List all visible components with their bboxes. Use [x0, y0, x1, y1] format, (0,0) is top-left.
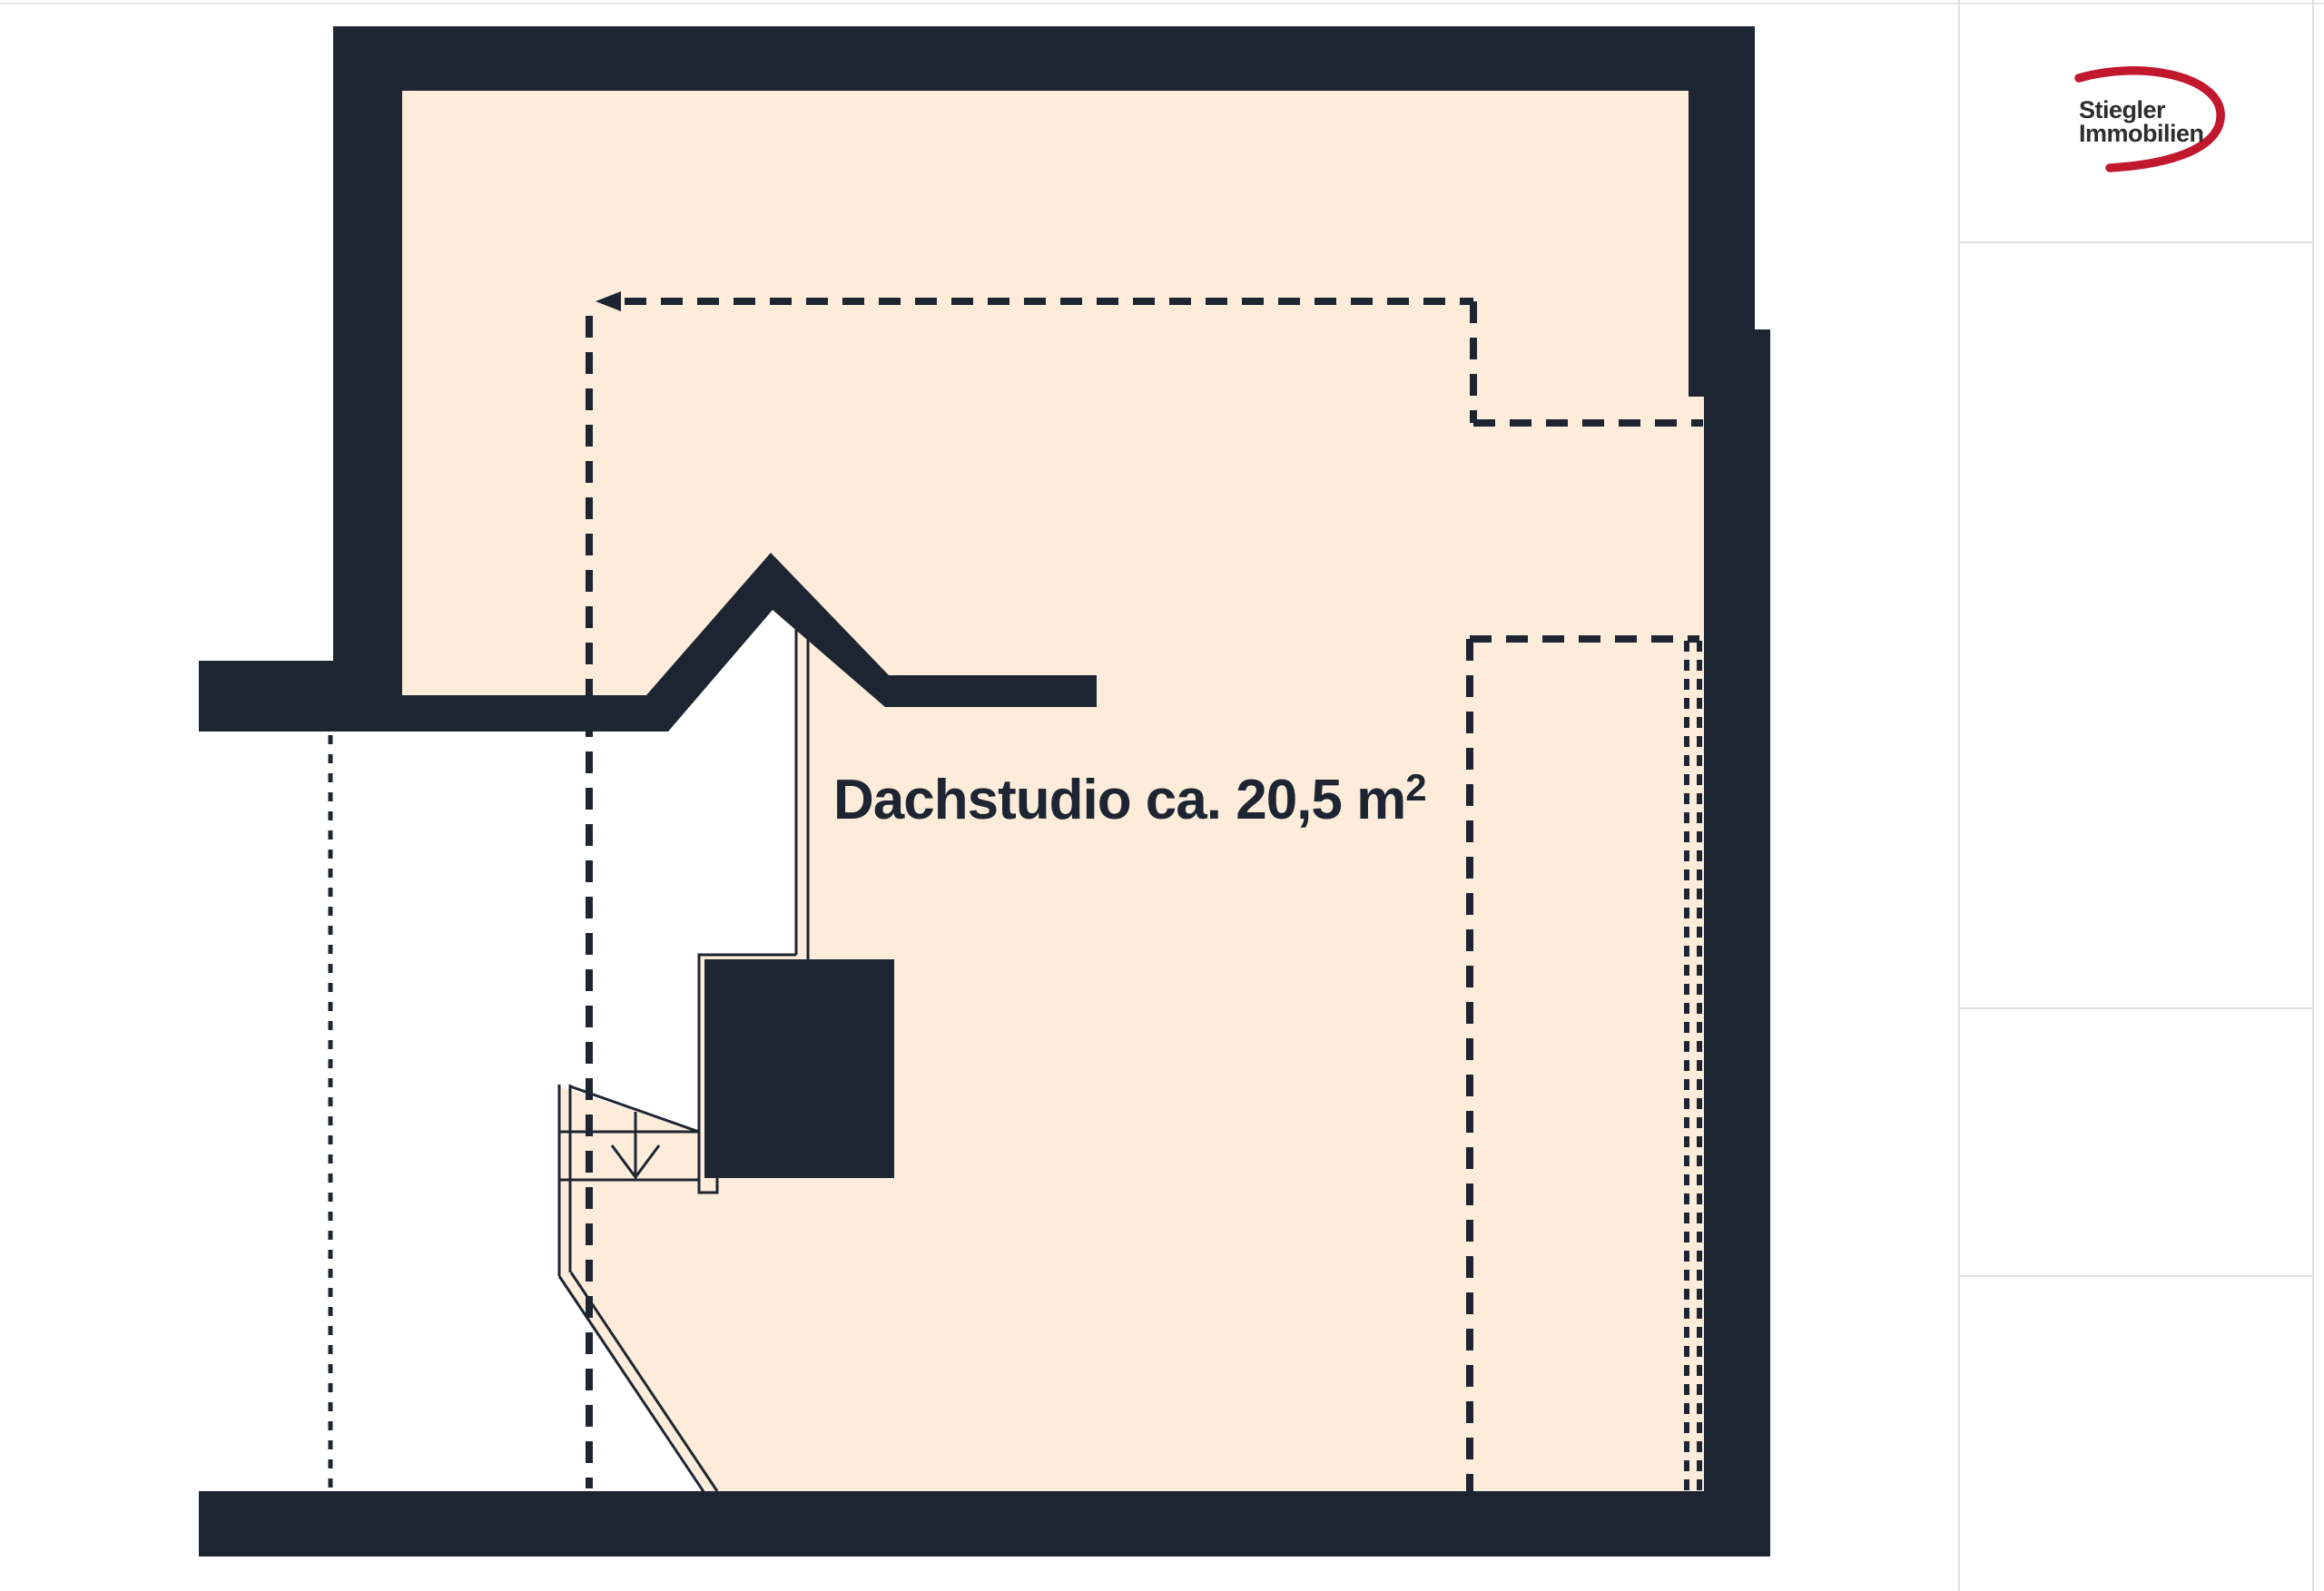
wall-right-upper	[1689, 91, 1755, 329]
room-area-label: Dachstudio ca. 20,5 m2	[833, 766, 1426, 831]
chimney-block	[704, 959, 894, 1178]
brand-name-line1: Stiegler	[2079, 98, 2204, 122]
wall-right-step	[1689, 329, 1770, 397]
wall-bottom	[199, 1491, 1770, 1557]
brand-logo: Stiegler Immobilien	[2070, 64, 2233, 182]
sidebar-divider-2	[1958, 1007, 2313, 1009]
wall-top	[333, 26, 1755, 91]
brand-logo-text: Stiegler Immobilien	[2079, 98, 2204, 145]
floorplan-drawing: Dachstudio ca. 20,5 m2	[0, 0, 2324, 1591]
floorplan-page: Dachstudio ca. 20,5 m2 Stiegler Immobili…	[0, 0, 2324, 1591]
brand-name-line2: Immobilien	[2079, 122, 2204, 145]
sidebar-divider-3	[1958, 1275, 2313, 1277]
wall-left-stub	[199, 661, 333, 732]
wall-left	[333, 26, 402, 732]
sidebar-divider-1	[1958, 241, 2313, 243]
sidebar-left-border	[1958, 0, 1960, 1591]
sidebar-right-border	[2312, 0, 2314, 1591]
wall-right-lower	[1704, 397, 1770, 1557]
